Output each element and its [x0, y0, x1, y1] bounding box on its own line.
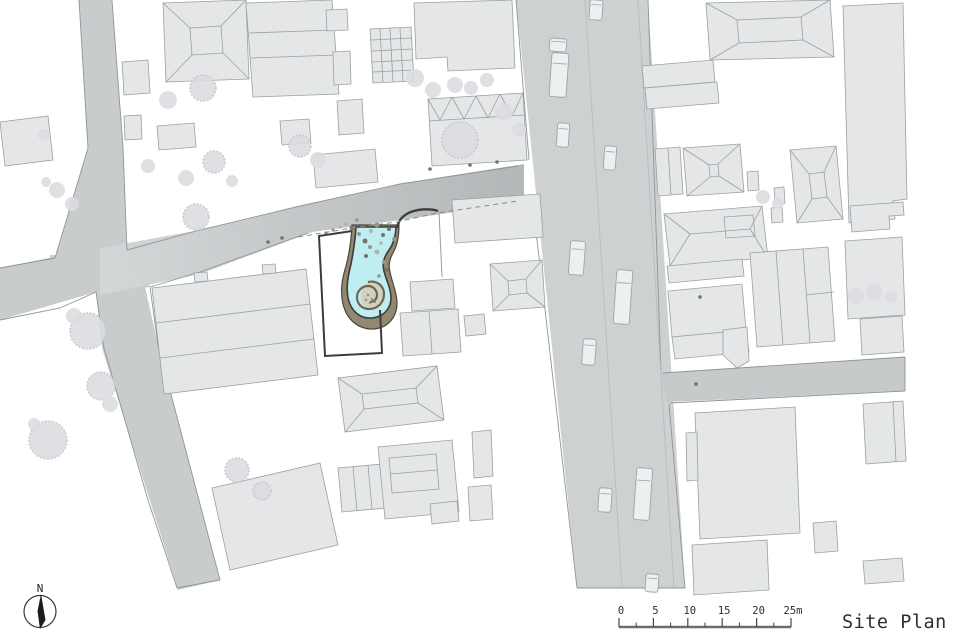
pebble [367, 294, 369, 296]
plaza-plant-dot [363, 239, 368, 244]
scale-label: 25m [784, 605, 803, 617]
tree-icon [512, 123, 526, 137]
tree-icon [885, 291, 897, 303]
building [464, 314, 486, 336]
compass-needle-icon [38, 594, 46, 629]
plaza-plant-dot [392, 237, 396, 241]
building [452, 194, 543, 243]
building [410, 279, 455, 311]
tree-icon [38, 129, 50, 141]
tree-icon [28, 418, 40, 430]
building [157, 123, 196, 150]
plaza-plant-dot [368, 245, 372, 249]
vehicle-icon [568, 241, 585, 276]
building-annex [430, 501, 459, 524]
building-annex [723, 327, 749, 368]
plaza-plant-dot [375, 250, 380, 255]
scale-label: 5 [652, 605, 658, 617]
tree-icon [848, 288, 864, 304]
scale-bar: 0510152025m [618, 605, 803, 627]
building [860, 316, 904, 355]
plaza-plant-dot [355, 218, 359, 222]
person-dot [495, 160, 499, 164]
building [163, 0, 249, 82]
person-dot [698, 295, 702, 299]
scale-label: 0 [618, 605, 624, 617]
pebble [374, 301, 376, 303]
building [337, 99, 364, 135]
building [692, 540, 769, 595]
north-label: N [37, 582, 44, 595]
building [326, 9, 348, 31]
site-plan: N 0510152025m Site Plan [0, 0, 960, 638]
tree-icon [756, 190, 770, 204]
building [683, 144, 744, 196]
tree-icon [447, 77, 463, 93]
building-annex [724, 215, 755, 238]
vehicle-icon [633, 468, 653, 521]
building [152, 269, 318, 394]
building [695, 407, 800, 539]
plot-edge [439, 212, 442, 277]
building [813, 521, 838, 553]
north-arrow: N [24, 582, 56, 629]
road-east [660, 357, 905, 402]
vehicle-icon [613, 270, 633, 325]
plaza-plant-dot [377, 274, 381, 278]
tree-icon [178, 170, 194, 186]
building [333, 51, 351, 85]
tree-icon [866, 284, 882, 300]
pebble [369, 302, 371, 304]
building [850, 202, 904, 232]
site-plan-drawing: N 0510152025m Site Plan [0, 0, 960, 638]
plaza-plant-dot [379, 241, 383, 245]
tree-icon [253, 482, 271, 500]
building [863, 558, 904, 584]
person-dot [280, 236, 284, 240]
building [414, 0, 515, 71]
tree-icon [495, 103, 513, 121]
building [655, 147, 683, 196]
scale-label: 10 [683, 605, 696, 617]
tree-icon [66, 308, 82, 324]
tree-icon [65, 197, 79, 211]
building [122, 60, 150, 95]
building [843, 3, 907, 223]
vehicle-icon [556, 123, 570, 148]
tree-icon [183, 204, 209, 230]
plaza-plant-dot [344, 222, 348, 226]
tree-icon [190, 75, 216, 101]
plaza-plant-dot [387, 227, 391, 231]
building [124, 115, 142, 140]
map-layers [0, 0, 907, 595]
vehicle-icon [603, 146, 617, 171]
plaza-plant-dot [357, 232, 361, 236]
person-dot [694, 382, 698, 386]
vehicle-icon [582, 339, 597, 366]
tree-icon [425, 82, 441, 98]
pebble [371, 298, 373, 300]
building [472, 430, 493, 478]
vehicle-icon [589, 0, 603, 20]
plaza-plant-dot [382, 260, 386, 264]
building [790, 146, 843, 223]
tree-icon [464, 81, 478, 95]
plaza-plant-dot [364, 254, 368, 258]
tree-icon [49, 182, 65, 198]
building [845, 237, 905, 319]
pebble [365, 299, 367, 301]
plaza-plant-dot [369, 229, 373, 233]
plaza-plant-dot [338, 225, 342, 229]
tree-icon [141, 159, 155, 173]
building [863, 401, 906, 464]
building [750, 247, 835, 347]
vehicle-icon [549, 38, 567, 52]
tree-icon [87, 372, 115, 400]
building [338, 464, 387, 512]
plaza-plant-dot [385, 268, 389, 272]
tree-icon [226, 175, 238, 187]
tree-icon [480, 73, 494, 87]
building-annex [262, 264, 276, 274]
tree-icon [442, 122, 478, 158]
building [771, 207, 783, 223]
tree-icon [772, 197, 784, 209]
tree-icon [406, 69, 424, 87]
building [468, 485, 493, 521]
tree-icon [102, 396, 118, 412]
plaza-plant-dot [375, 223, 380, 228]
building [490, 260, 545, 311]
building-annex [194, 272, 208, 282]
drawing-title: Site Plan [842, 612, 947, 633]
person-dot [428, 167, 432, 171]
tree-icon [289, 135, 311, 157]
person-dot [468, 163, 472, 167]
vehicle-icon [549, 52, 569, 97]
road-north [55, 0, 127, 258]
tree-icon [41, 177, 51, 187]
tree-icon [225, 458, 249, 482]
building [246, 0, 339, 97]
building [0, 116, 53, 166]
building [747, 171, 759, 191]
person-dot [266, 240, 270, 244]
vehicle-icon [598, 488, 613, 513]
scale-label: 15 [718, 605, 731, 617]
tree-icon [159, 91, 177, 109]
building-annex [686, 432, 698, 481]
scale-label: 20 [752, 605, 765, 617]
plaza-plant-dot [381, 233, 385, 237]
vehicle-icon [645, 574, 659, 593]
tree-icon [203, 151, 225, 173]
tree-icon [310, 152, 326, 168]
